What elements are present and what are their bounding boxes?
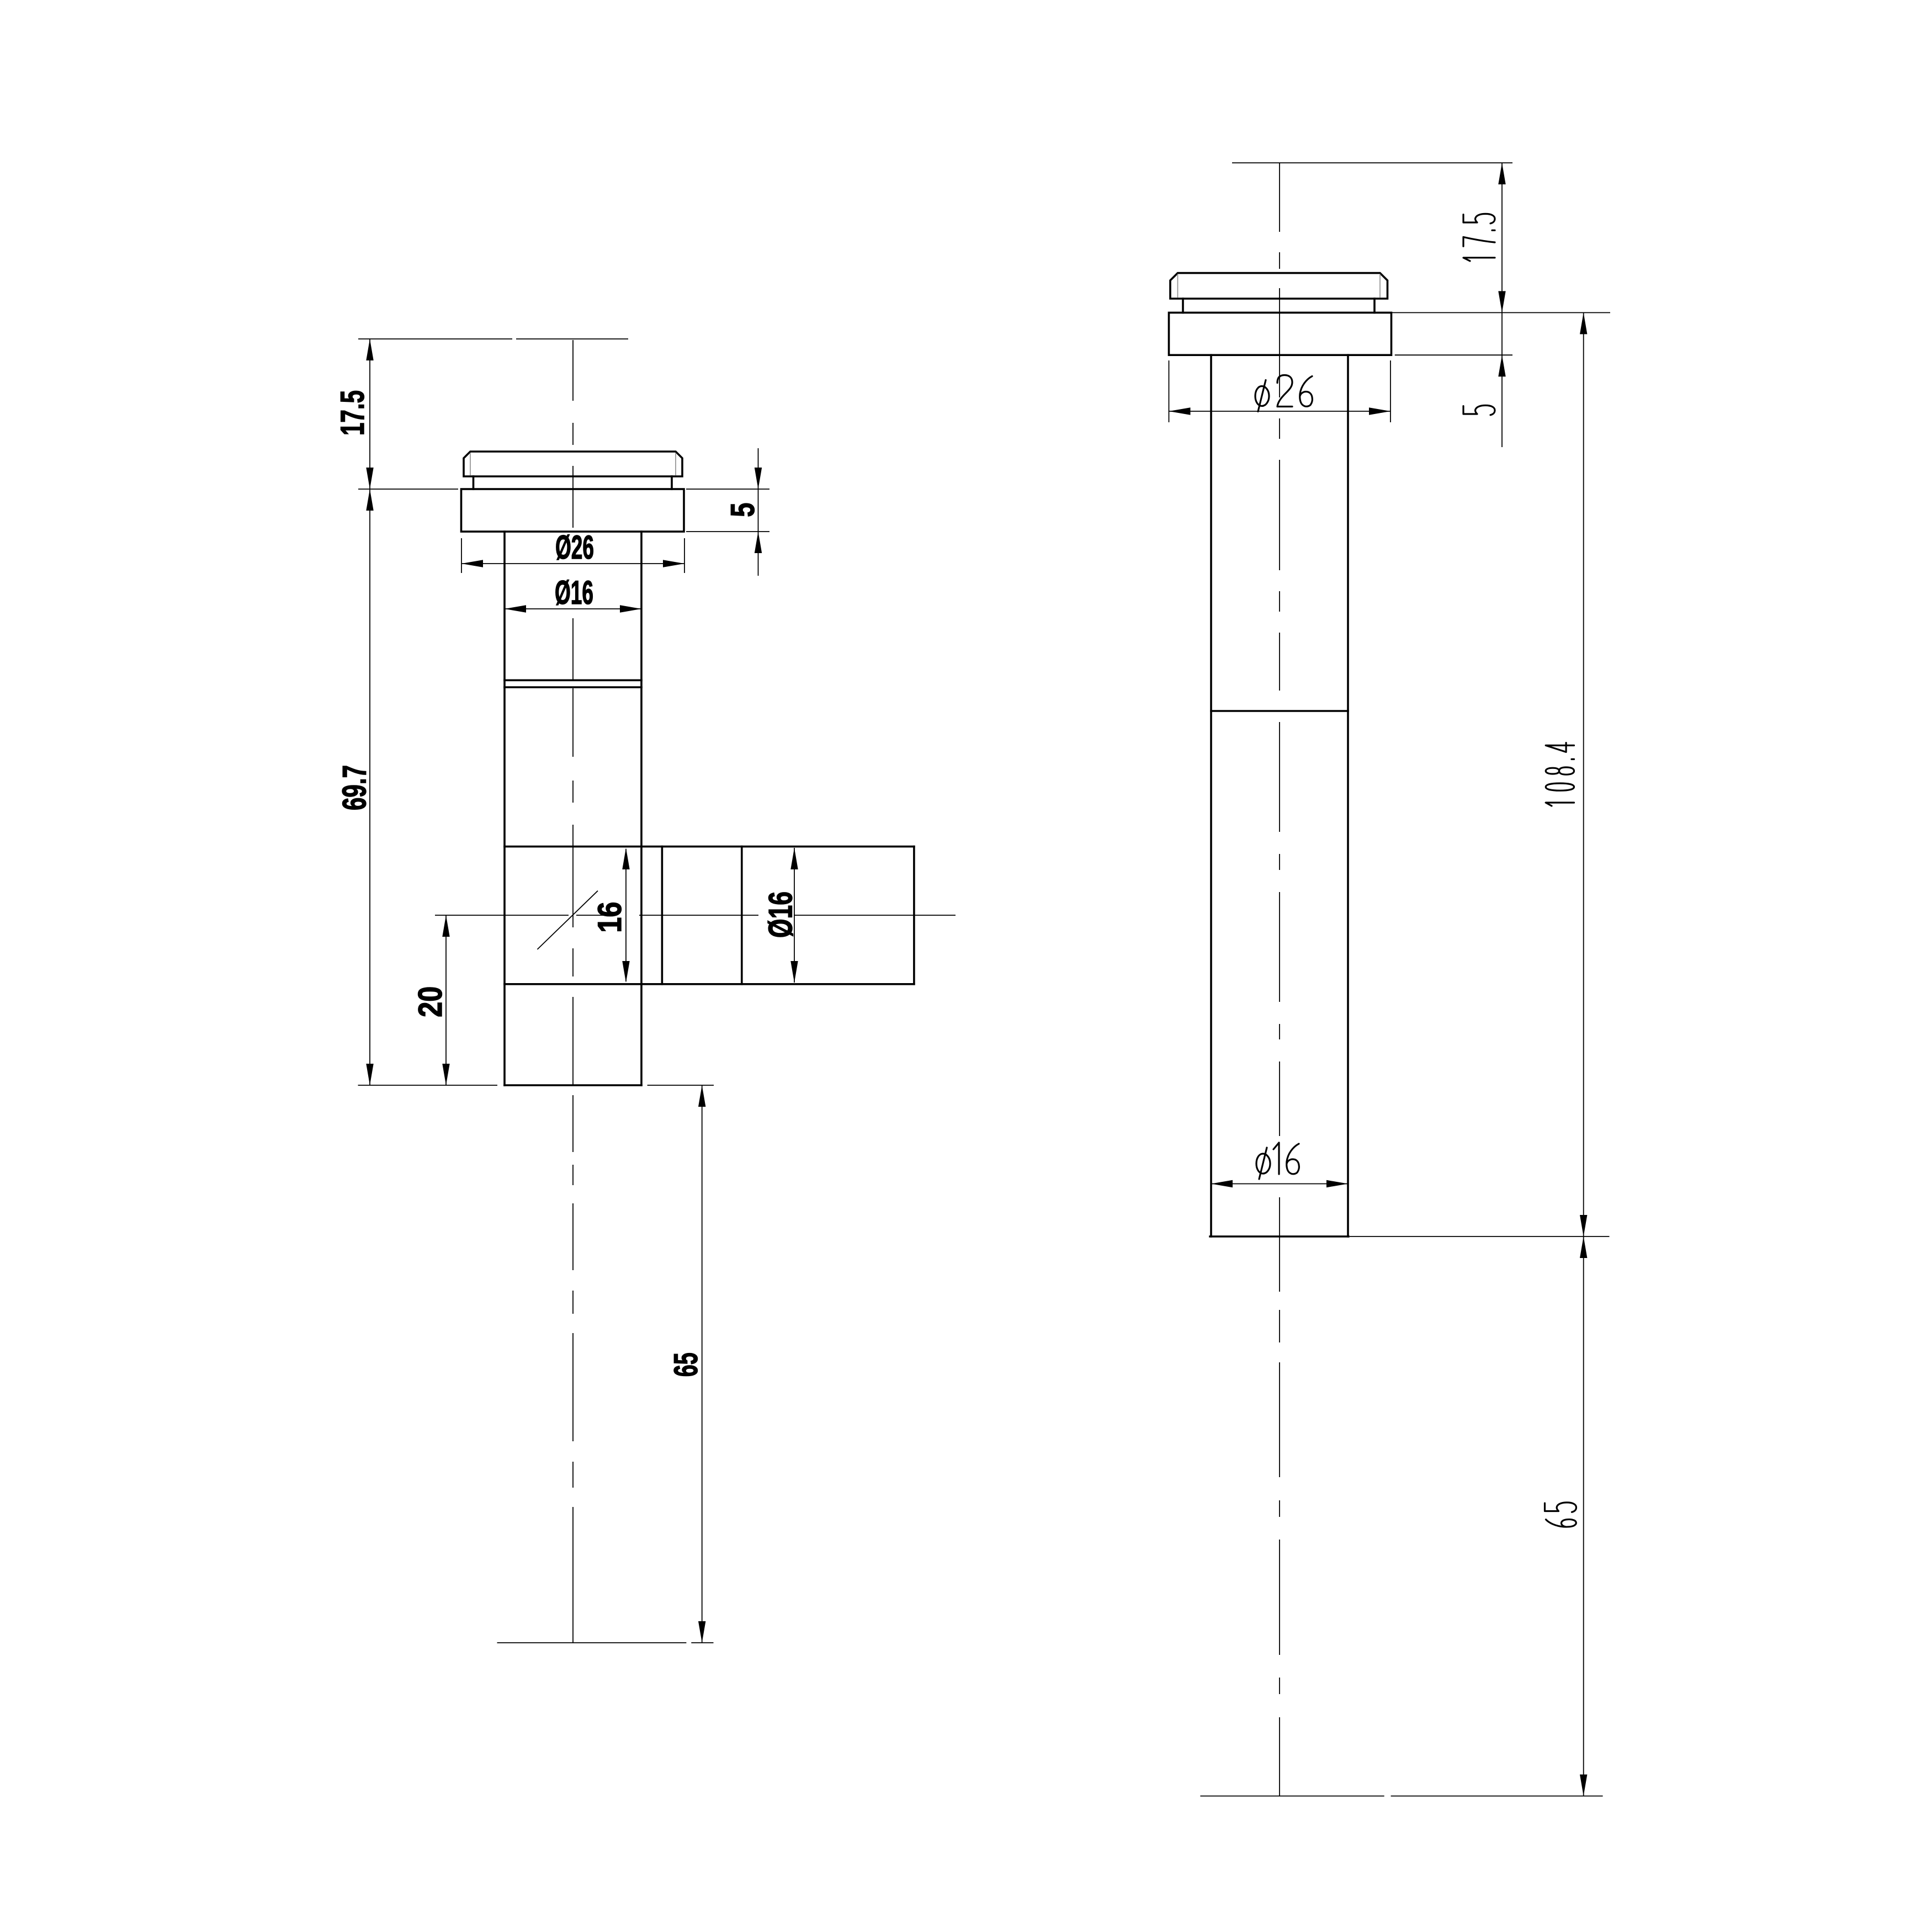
- svg-text:Ø26: Ø26: [555, 529, 594, 566]
- svg-text:17.5: 17.5: [334, 390, 371, 436]
- svg-text:Ø16: Ø16: [762, 891, 799, 938]
- svg-text:69.7: 69.7: [336, 765, 373, 810]
- svg-text:16: 16: [591, 902, 628, 933]
- svg-text:5: 5: [724, 503, 761, 517]
- svg-text:Ø16: Ø16: [555, 574, 593, 611]
- svg-text:65: 65: [667, 1352, 704, 1377]
- svg-text:20: 20: [412, 986, 449, 1017]
